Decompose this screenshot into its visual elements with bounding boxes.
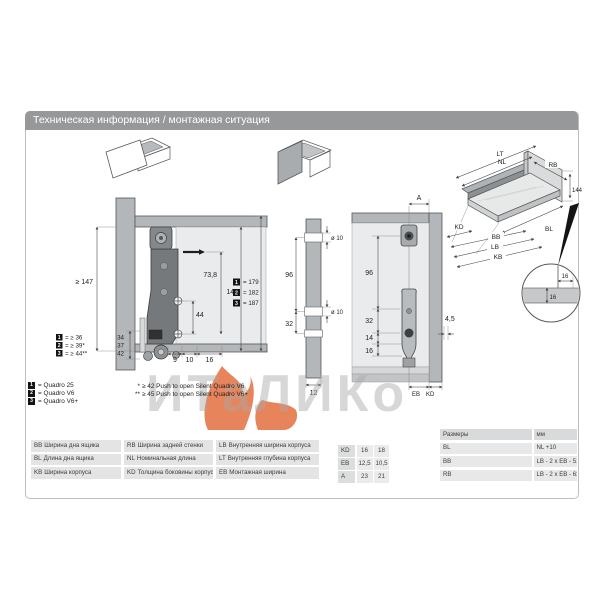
table-cell: EB: [338, 458, 355, 470]
table-cell: LTВнутренняя глубина корпуса: [216, 454, 319, 466]
table-cell: 23: [357, 471, 373, 483]
table-cell: BLДлина дна ящика: [31, 454, 121, 466]
table-cell: BL: [440, 443, 532, 454]
table-cell: BBШирина дна ящика: [31, 440, 121, 452]
table-cell: KDТолщина боковины корпуса: [124, 467, 213, 479]
table-cell: 21: [374, 471, 389, 483]
table-cell: 18: [374, 445, 389, 457]
table-cell: 16: [357, 445, 373, 457]
legend-item: 3= Quadro V6+: [28, 398, 78, 406]
table-cell: RB: [440, 470, 532, 481]
page-title-bar: Техническая информация / монтажная ситуа…: [25, 111, 578, 130]
footnote: **≥ 45 Push to open Silent Quadro V6+: [131, 391, 248, 399]
page-title: Техническая информация / монтажная ситуа…: [25, 114, 270, 126]
table-cell: LB - 2 x EB - 63: [534, 470, 577, 481]
values-table: KD 16 18 EB 12,5 10,5 A 23 21: [338, 445, 389, 483]
footnotes: *≥ 42 Push to open Silent Quadro V6 **≥ …: [131, 383, 248, 399]
legend-badge-3: 3: [28, 398, 35, 405]
table-cell: 10,5: [374, 458, 389, 470]
table-header: Размеры: [440, 429, 532, 440]
abbreviations-table: BBШирина дна ящика RBШирина задней стенк…: [31, 440, 319, 479]
footnote: *≥ 42 Push to open Silent Quadro V6: [131, 383, 248, 391]
table-cell: 12,5: [357, 458, 373, 470]
table-cell: RBШирина задней стенки: [124, 440, 213, 452]
table-cell: NLНоминальная длина: [124, 454, 213, 466]
table-cell: BB: [440, 456, 532, 467]
legend-item: 2= Quadro V6: [28, 390, 78, 398]
table-header: мм: [534, 429, 577, 440]
legend-item: 1= Quadro 25: [28, 382, 78, 390]
legend: 1= Quadro 25 2= Quadro V6 3= Quadro V6+: [28, 382, 78, 406]
table-cell: A: [338, 471, 355, 483]
table-cell: LB - 2 x EB - 51,5: [534, 456, 577, 467]
table-cell: KD: [338, 445, 355, 457]
table-cell: EBМонтажная ширина: [216, 467, 319, 479]
table-cell: KBШирина корпуса: [31, 467, 121, 479]
legend-badge-1: 1: [28, 382, 35, 389]
table-cell: NL +10: [534, 443, 577, 454]
technical-document-page: { "header": { "title": "Техническая инфо…: [0, 0, 600, 600]
formulas-table: Размеры мм BL NL +10 BB LB - 2 x EB - 51…: [440, 429, 577, 481]
legend-badge-2: 2: [28, 390, 35, 397]
table-cell: LBВнутренняя ширина корпуса: [216, 440, 319, 452]
